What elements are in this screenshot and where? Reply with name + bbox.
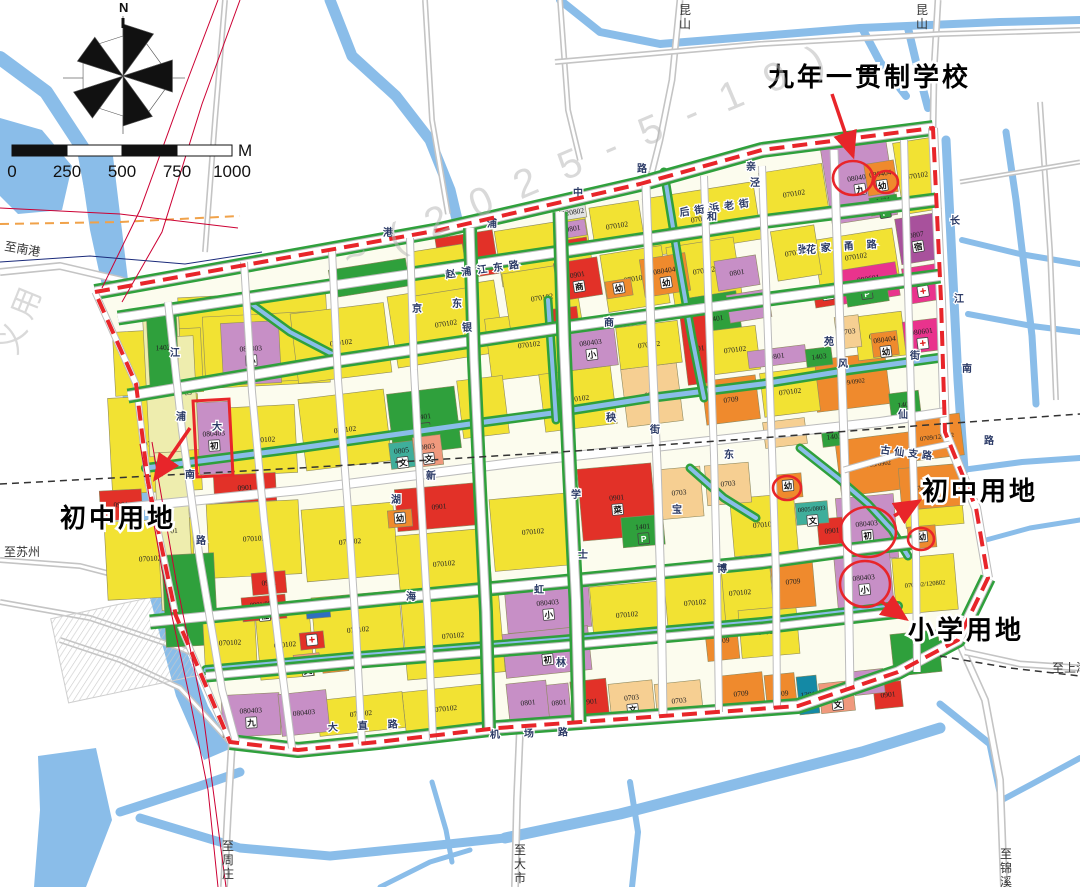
parcel-code: 0801 [520,697,536,708]
road-name-label: 海 [406,590,416,603]
river [380,850,470,887]
road-name-label: 东 [724,448,734,461]
facility-icon: 文 [398,457,408,468]
river [1002,758,1080,800]
river [505,728,940,838]
parcel-code: 0901 [824,525,840,535]
facility-icon: 幼 [395,513,405,524]
facility-icon: 小 [586,349,597,360]
road-name-label: 苑 [823,335,834,348]
compass-north-label: N [119,0,128,15]
watermark-text: 义用 [0,276,51,359]
parcel-code: 070102 [219,637,242,647]
facility-icon: 小 [543,609,554,620]
destination-label: 昆 [679,3,691,17]
river [968,314,1080,332]
road-name-label: 长 [950,214,961,227]
destination-label: 庄 [222,866,234,881]
road-name-label: 秧 [606,411,617,424]
destination-label: 市 [514,870,526,885]
destination-label: 溪 [1000,875,1012,887]
scale-tick: 0 [7,162,16,181]
road-name-label: 学 [571,488,581,501]
destination-label: 山 [916,17,928,31]
road-name-label: 新 [426,469,436,482]
river [432,782,452,862]
parcel-code: 0709 [723,394,739,405]
parcel-code: 0703 [671,487,687,497]
parcel: 幼 [605,278,633,299]
facility-icon: 小 [859,584,870,595]
road-name-label: 街 [909,349,920,362]
parcel-code: 0801 [551,697,567,708]
parcel-code: 0901 [431,501,447,511]
parcel-code: 0805 [393,445,409,456]
road-name-label: 花 [806,243,816,256]
facility-icon: 初 [543,654,553,665]
compass-north-tick [122,18,125,28]
scale-tick: 500 [108,162,136,181]
road-name-label: 泾 [750,176,760,189]
road-name-label: 仙 [898,408,908,421]
road-name-label: 士 [578,548,588,561]
out-road-casing [648,0,680,188]
scale-tick: 250 [53,162,81,181]
destination-label: 至 [222,839,234,853]
road-name-label: 和 [706,210,717,223]
parcel: + [299,631,325,650]
destination-label: 昆 [916,3,928,17]
road-name-label: 路 [637,162,648,175]
out-road-casing [425,0,448,214]
facility-icon: 文 [424,453,434,464]
annotation-middle-school-left: 初中用地 [60,503,176,533]
planning-map: 0701020701020701020701020701020701020701… [0,0,1080,887]
destination-label: 大 [514,857,526,871]
parcel: 070102 [206,500,302,579]
river [34,748,112,887]
destination-label: 山 [679,17,691,31]
river [962,458,1080,470]
road-name-label: 路 [984,434,995,447]
facility-icon: 初 [210,441,220,451]
road-name-label: 湖 [391,493,401,506]
compass-rose: N [63,0,185,134]
parcel-code: 070102 [139,553,162,563]
parcel-code: 080403 [239,705,262,715]
facility-icon: 菜 [612,504,623,515]
river [630,782,638,887]
parcel: 0801 [714,255,760,291]
destination-label: 至上海 [1052,660,1080,675]
road-name-label: 京 [412,302,422,315]
scale-tick: 750 [163,162,191,181]
facility-icon: 幼 [783,480,793,491]
out-road [205,0,225,252]
facility-icon: 九 [246,718,257,729]
road-name-label: 东 [452,297,462,310]
parcel-code: 0703 [720,478,736,488]
out-road [958,640,1004,887]
destination-label: 至苏州 [4,545,40,559]
out-road [960,162,1080,182]
road-name-label: 风 [838,358,848,370]
land-use-map-svg: 0701020701020701020701020701020701020701… [0,0,1080,887]
road-name-label: 南 [962,362,972,375]
road-name-label: 江 [954,292,964,305]
river [120,772,240,812]
road-name-label: 街 [649,423,660,436]
road-name-label: 江 [170,346,180,359]
destination-label: 至南港 [3,238,41,259]
parcel-code: 0709 [785,576,801,586]
destination-label: 周 [222,853,234,867]
scale-segment [12,145,67,156]
road-name-label: 商 [604,316,614,329]
scale-segment [177,145,232,156]
parcel: 0805文 [389,441,416,470]
river [986,520,1080,540]
road-name-label: 林 [556,656,567,669]
road-name-label: 虹 [534,583,544,596]
parcel-code: 1403 [811,351,827,362]
hospital-cross-icon: + [308,634,316,647]
parcel: 幼 [387,509,412,528]
parcel-code: 1401 [635,521,651,531]
parcel-code: 0901 [609,492,625,502]
road-name-label: 银 [462,321,473,334]
annotation-primary-school: 小学用地 [908,615,1024,645]
facility-icon: 幼 [881,346,891,357]
road-name-label: 亲 [746,160,756,173]
parcel: 070102 [230,404,297,475]
road-name-label: 博 [717,562,727,575]
destination-label: 至 [514,843,526,857]
scale-tick: 1000 [213,162,251,181]
destination-label: 至 [1000,847,1012,861]
parcel: 080404幼 [871,331,900,359]
parcel-code: 0703 [671,695,687,706]
facility-icon: 文 [808,515,818,526]
road-name-label: 浦 [176,410,186,423]
parcel: 1403 [805,346,833,367]
road-name-label: 路 [196,534,207,547]
scale-segment [67,145,122,156]
facility-icon: 初 [863,530,873,541]
scale-unit-label: M [238,141,252,160]
destination-label: 锦 [1000,861,1012,875]
road-name-label: 宝 [672,503,682,516]
scale-segment [122,145,177,156]
road-name-label: 南 [185,468,195,481]
annotation-middle-school-right: 初中用地 [922,476,1038,506]
parcel-code: 0709 [733,688,749,699]
road-name-label: 大 [212,420,222,433]
parcel-code: 0703 [624,692,640,703]
